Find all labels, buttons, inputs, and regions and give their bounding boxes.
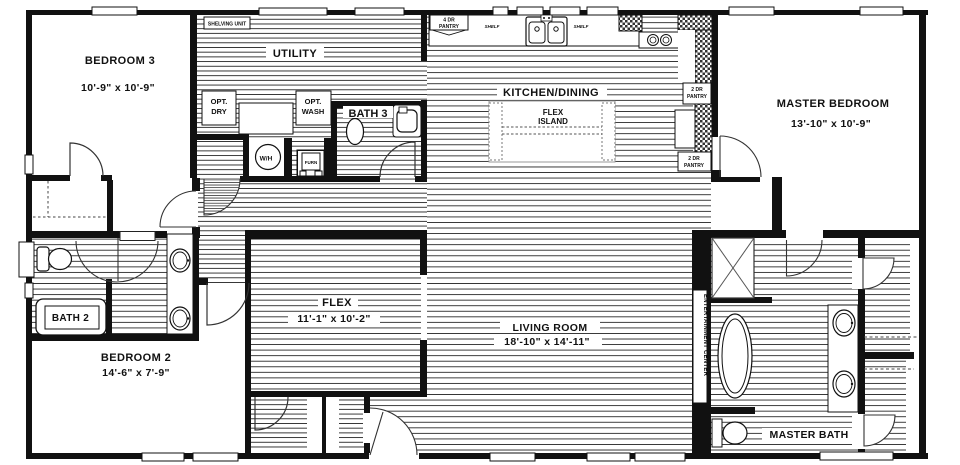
- svg-text:UTILITY: UTILITY: [273, 48, 318, 60]
- svg-text:11'-1" x 10'-2": 11'-1" x 10'-2": [297, 313, 370, 325]
- svg-text:18'-10" x 14'-11": 18'-10" x 14'-11": [504, 336, 590, 348]
- svg-text:2 DR: 2 DR: [688, 156, 700, 162]
- svg-text:MASTER BEDROOM: MASTER BEDROOM: [777, 98, 890, 110]
- svg-text:WASH: WASH: [302, 107, 325, 116]
- svg-text:DRY: DRY: [211, 107, 227, 116]
- svg-text:BATH 3: BATH 3: [349, 108, 388, 120]
- svg-text:PANTRY: PANTRY: [439, 24, 460, 30]
- svg-text:10'-9" x 10'-9": 10'-9" x 10'-9": [81, 82, 155, 94]
- svg-text:OPT.: OPT.: [305, 97, 322, 106]
- svg-text:PANTRY: PANTRY: [684, 163, 705, 169]
- svg-text:SHELVING UNIT: SHELVING UNIT: [208, 22, 246, 28]
- svg-text:FLEX: FLEX: [543, 108, 564, 117]
- svg-text:KITCHEN/DINING: KITCHEN/DINING: [503, 87, 599, 99]
- svg-text:ISLAND: ISLAND: [538, 117, 568, 126]
- svg-text:4 DR: 4 DR: [443, 18, 455, 24]
- svg-text:ENTERTAINMENT CENTER: ENTERTAINMENT CENTER: [702, 294, 708, 377]
- svg-text:13'-10" x 10'-9": 13'-10" x 10'-9": [791, 118, 871, 130]
- svg-text:OPT.: OPT.: [211, 97, 228, 106]
- svg-text:14'-6" x 7'-9": 14'-6" x 7'-9": [102, 367, 170, 379]
- svg-text:MASTER BATH: MASTER BATH: [770, 429, 849, 441]
- svg-text:LIVING ROOM: LIVING ROOM: [513, 322, 588, 334]
- svg-text:BEDROOM 3: BEDROOM 3: [85, 55, 155, 67]
- svg-text:PANTRY: PANTRY: [687, 94, 708, 100]
- svg-text:FURN: FURN: [305, 160, 318, 165]
- svg-text:W/H: W/H: [260, 156, 273, 163]
- svg-text:SHELF: SHELF: [485, 24, 500, 29]
- svg-text:BATH 2: BATH 2: [52, 313, 89, 324]
- svg-text:SHELF: SHELF: [574, 24, 589, 29]
- svg-text:BEDROOM 2: BEDROOM 2: [101, 352, 171, 364]
- svg-text:FLEX: FLEX: [322, 297, 352, 309]
- svg-text:2 DR: 2 DR: [691, 87, 703, 93]
